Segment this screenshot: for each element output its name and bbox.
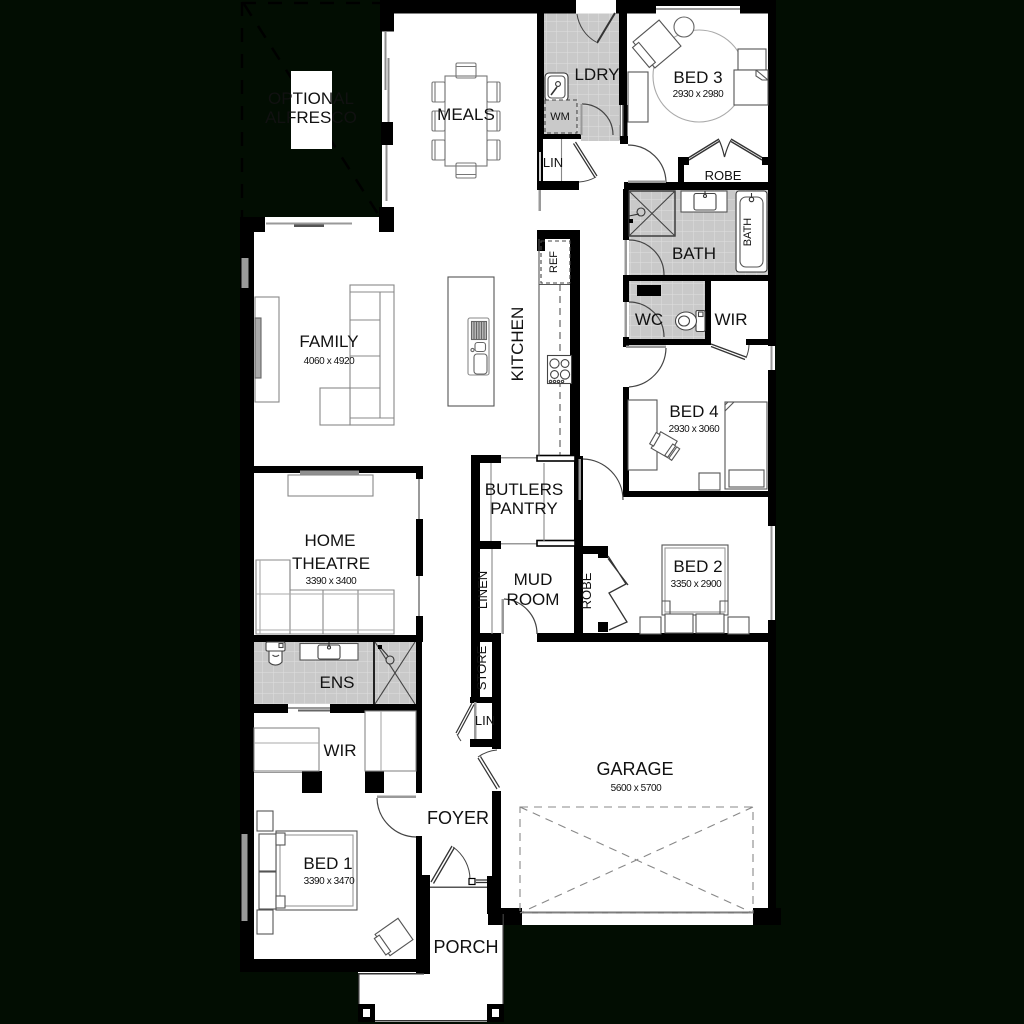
- svg-text:MUD: MUD: [514, 570, 553, 589]
- svg-text:WIR: WIR: [323, 741, 356, 760]
- svg-text:FOYER: FOYER: [427, 808, 489, 828]
- svg-text:LINEN: LINEN: [475, 571, 490, 609]
- svg-text:ROOM: ROOM: [507, 590, 560, 609]
- svg-text:2930 x 3060: 2930 x 3060: [669, 424, 720, 435]
- svg-text:BED 4: BED 4: [669, 402, 718, 421]
- svg-text:GARAGE: GARAGE: [596, 759, 673, 779]
- svg-text:OPTIONAL: OPTIONAL: [268, 89, 354, 108]
- svg-text:REF: REF: [548, 251, 560, 273]
- svg-text:LDRY: LDRY: [574, 65, 619, 84]
- svg-text:WIR: WIR: [714, 310, 747, 329]
- svg-text:FAMILY: FAMILY: [299, 332, 358, 351]
- svg-text:5600 x 5700: 5600 x 5700: [611, 783, 662, 794]
- svg-text:3390 x 3400: 3390 x 3400: [306, 576, 357, 587]
- svg-text:3390 x 3470: 3390 x 3470: [304, 876, 355, 887]
- svg-text:BATH: BATH: [742, 218, 754, 247]
- svg-text:HOME: HOME: [305, 531, 356, 550]
- svg-text:BUTLERS: BUTLERS: [485, 480, 563, 499]
- svg-text:WC: WC: [635, 310, 663, 329]
- svg-text:STORE: STORE: [474, 645, 489, 690]
- svg-text:ALFRESCO: ALFRESCO: [265, 108, 357, 127]
- svg-text:LIN: LIN: [543, 155, 563, 170]
- svg-text:LIN: LIN: [475, 713, 495, 728]
- svg-text:ROBE: ROBE: [579, 572, 594, 609]
- svg-text:PORCH: PORCH: [433, 937, 498, 957]
- svg-text:KITCHEN: KITCHEN: [508, 307, 527, 382]
- svg-text:2930 x 2980: 2930 x 2980: [673, 89, 724, 100]
- svg-text:ROBE: ROBE: [705, 168, 742, 183]
- svg-text:BED 1: BED 1: [303, 854, 352, 873]
- svg-text:BATH: BATH: [672, 244, 716, 263]
- svg-text:3350 x 2900: 3350 x 2900: [671, 579, 722, 590]
- svg-text:WM: WM: [550, 111, 570, 123]
- svg-text:4060 x 4920: 4060 x 4920: [304, 356, 355, 367]
- svg-text:BED 2: BED 2: [673, 557, 722, 576]
- svg-text:MEALS: MEALS: [437, 105, 495, 124]
- svg-text:PANTRY: PANTRY: [490, 499, 557, 518]
- svg-text:BED 3: BED 3: [673, 68, 722, 87]
- svg-text:THEATRE: THEATRE: [292, 554, 370, 573]
- svg-text:ENS: ENS: [320, 673, 355, 692]
